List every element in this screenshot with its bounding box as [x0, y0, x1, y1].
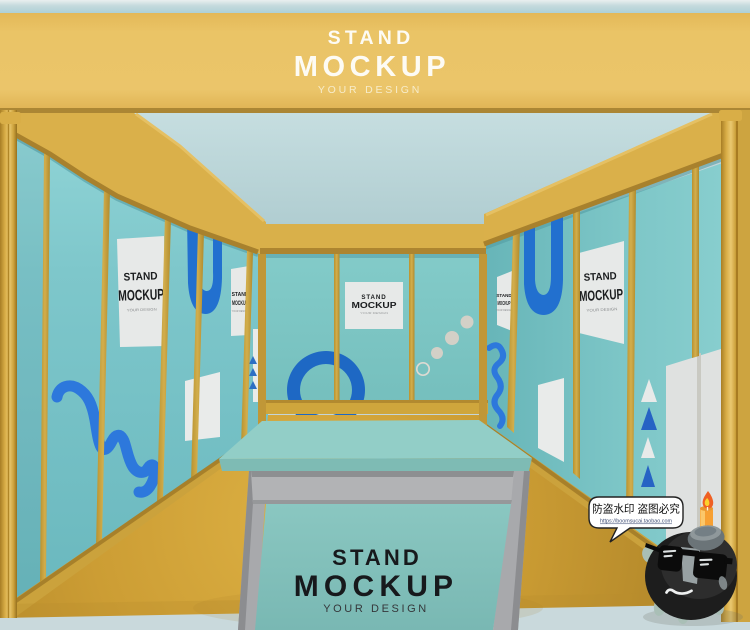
- svg-text:MOCKUP: MOCKUP: [352, 301, 398, 310]
- svg-text:STAND: STAND: [361, 294, 386, 301]
- svg-text:STAND: STAND: [583, 270, 617, 284]
- svg-text:YOUR DESIGN: YOUR DESIGN: [496, 309, 513, 312]
- svg-text:https://boomsucai.taobao.com: https://boomsucai.taobao.com: [600, 519, 672, 525]
- svg-text:MOCKUP: MOCKUP: [118, 286, 165, 305]
- svg-text:MOCKUP: MOCKUP: [294, 51, 451, 83]
- svg-text:防盗水印 盗图必究: 防盗水印 盗图必究: [592, 503, 680, 516]
- svg-text:YOUR DESIGN: YOUR DESIGN: [323, 603, 429, 615]
- svg-text:MOCKUP: MOCKUP: [579, 287, 624, 305]
- svg-text:STAND: STAND: [332, 545, 422, 570]
- svg-text:STAND: STAND: [328, 27, 415, 49]
- svg-text:STAND: STAND: [123, 270, 157, 283]
- svg-text:MOCKUP: MOCKUP: [294, 570, 459, 603]
- svg-text:STAND: STAND: [496, 293, 512, 298]
- svg-text:YOUR DESIGN: YOUR DESIGN: [360, 311, 388, 315]
- svg-text:MOCKUP: MOCKUP: [498, 301, 511, 307]
- svg-text:YOUR DESIGN: YOUR DESIGN: [318, 84, 422, 96]
